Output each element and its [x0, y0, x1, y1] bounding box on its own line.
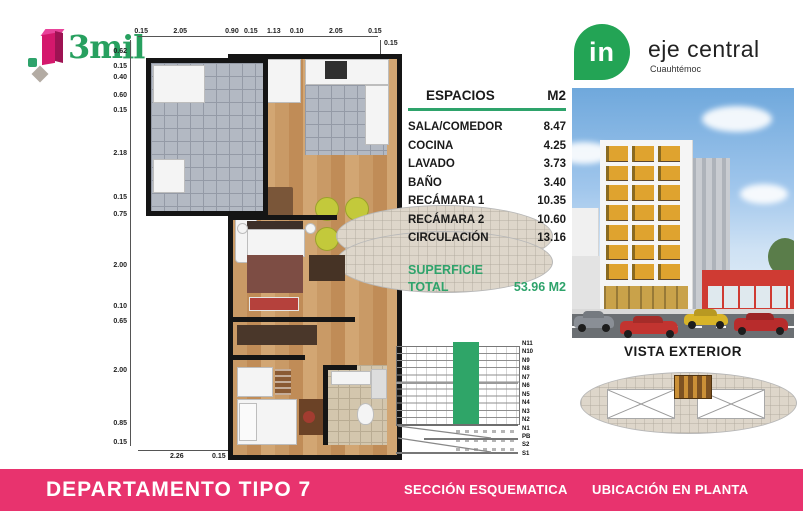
balcony	[658, 264, 680, 280]
wardrobe	[309, 255, 345, 281]
dimension-value: 2.00	[108, 334, 130, 408]
section-level-labels: N11N10N9N8N7N6N5N4N3N2N1PBS2S1	[522, 341, 533, 457]
car	[734, 318, 788, 331]
pin-text: in	[589, 37, 615, 68]
level-label: N9	[522, 358, 533, 364]
row-value: 3.73	[544, 155, 566, 174]
kitchen-counter	[305, 59, 389, 85]
laundry-counter	[153, 65, 205, 103]
bed1-pillows	[247, 229, 305, 257]
balcony	[606, 146, 628, 162]
page-title: DEPARTAMENTO TIPO 7	[46, 469, 311, 511]
nightstand	[237, 223, 248, 234]
spaces-table: ESPACIOS M2 SALA/COMEDOR 8.47 COCINA 4.2…	[408, 88, 566, 296]
row-value: 3.40	[544, 174, 566, 193]
dimension-value: 0.40	[108, 70, 130, 85]
level-label: N3	[522, 409, 533, 415]
dimension-value: 0.85	[108, 408, 130, 440]
balcony	[632, 185, 654, 201]
level-label: N6	[522, 383, 533, 389]
highlighted-unit	[674, 375, 712, 399]
balcony-grid	[606, 146, 680, 280]
section-caption: SECCIÓN ESQUEMATICA	[404, 469, 568, 511]
tower-facade	[600, 140, 692, 316]
level-label: N5	[522, 392, 533, 398]
bed1-headboard	[247, 221, 303, 229]
row-value: 10.60	[537, 211, 566, 230]
toilet	[357, 403, 374, 425]
laundry-wing	[146, 58, 268, 216]
balcony	[632, 245, 654, 261]
balcony	[632, 166, 654, 182]
cloud	[740, 184, 788, 204]
dimension-value: 0.15	[372, 26, 378, 36]
footer-bar: DEPARTAMENTO TIPO 7 SECCIÓN ESQUEMATICA …	[0, 469, 803, 511]
bed2-pillow	[239, 403, 257, 441]
dimension-value: 0.15	[108, 439, 130, 446]
location-pin-icon: in	[574, 24, 630, 80]
row-label: COCINA	[408, 137, 453, 156]
dimension-value: 0.15	[108, 194, 130, 201]
level-label: N7	[522, 375, 533, 381]
balcony	[658, 205, 680, 221]
storefront-glass	[706, 286, 790, 308]
dimension-value: 0.60	[108, 84, 130, 106]
developer-name: eje central	[648, 36, 760, 63]
balcony	[606, 225, 628, 241]
spaces-table-unit-header: M2	[547, 88, 566, 103]
highlighted-unit-stack	[453, 342, 479, 426]
ladder-shelf	[275, 369, 291, 395]
balcony	[632, 146, 654, 162]
balcony	[632, 205, 654, 221]
table-row: RECÁMARA 2 10.60	[408, 211, 566, 230]
washer	[153, 159, 185, 193]
total-label-line1: SUPERFICIE	[408, 262, 566, 279]
level-label: N1	[522, 426, 533, 432]
balcony	[658, 245, 680, 261]
balcony	[658, 146, 680, 162]
ramp-lines	[396, 424, 518, 456]
brochure-sheet: { "brand": { "name": "3mil" }, "develope…	[0, 0, 803, 528]
row-label: CIRCULACIÓN	[408, 229, 489, 248]
car	[574, 316, 614, 328]
schematic-section: N11N10N9N8N7N6N5N4N3N2N1PBS2S1	[396, 341, 548, 460]
location-caption: UBICACIÓN EN PLANTA	[592, 469, 748, 511]
dimension-column-left: 0.620.150.400.600.152.180.150.752.000.10…	[108, 40, 131, 446]
brand-logo-cube-icon	[42, 33, 55, 65]
table-row: LAVADO 3.73	[408, 155, 566, 174]
table-row: COCINA 4.25	[408, 137, 566, 156]
wardrobe2	[237, 367, 273, 397]
level-label: N11	[522, 341, 533, 347]
dresser	[249, 297, 299, 311]
stove	[325, 61, 347, 79]
level-label: N2	[522, 417, 533, 423]
desk-chair	[303, 411, 315, 423]
developer-location: Cuauhtémoc	[650, 64, 701, 74]
developer-logo: in eje central Cuauhtémoc	[574, 24, 794, 82]
storefront	[702, 270, 794, 314]
brand-logo-dot-icon	[28, 58, 37, 67]
dimension-value: 2.05	[144, 26, 216, 36]
balcony	[606, 245, 628, 261]
balcony	[658, 185, 680, 201]
car	[620, 321, 678, 334]
dimension-value: 1.13	[254, 26, 294, 36]
bathroom-sink	[331, 371, 371, 385]
row-value: 4.25	[544, 137, 566, 156]
row-label: BAÑO	[408, 174, 442, 193]
interior-wall	[323, 365, 328, 445]
level-label: S2	[522, 442, 533, 448]
exterior-render	[572, 88, 794, 338]
green-rule	[408, 108, 566, 111]
balcony	[658, 225, 680, 241]
table-row: RECÁMARA 1 10.35	[408, 192, 566, 211]
closet	[237, 325, 317, 345]
table-row: SALA/COMEDOR 8.47	[408, 118, 566, 137]
row-label: SALA/COMEDOR	[408, 118, 503, 137]
balcony	[606, 185, 628, 201]
row-label: RECÁMARA 1	[408, 192, 484, 211]
dimension-value: 0.15	[108, 63, 130, 70]
row-label: LAVADO	[408, 155, 455, 174]
dimension-value: 0.90	[216, 26, 248, 36]
row-label: RECÁMARA 2	[408, 211, 484, 230]
dimension-value: 0.65	[108, 310, 130, 334]
spaces-table-title: ESPACIOS	[426, 88, 495, 103]
dimension-value: 0.10	[108, 303, 130, 310]
cloud	[702, 106, 772, 132]
nightstand	[305, 223, 316, 234]
courtyard	[607, 389, 675, 419]
row-value: 8.47	[544, 118, 566, 137]
floorplan-drawing	[142, 42, 394, 452]
level-label: PB	[522, 434, 533, 440]
interior-wall	[233, 355, 305, 360]
bathroom-cabinet	[371, 369, 387, 399]
level-label: S1	[522, 451, 533, 457]
brand-logo-base-icon	[32, 66, 49, 83]
table-row: BAÑO 3.40	[408, 174, 566, 193]
row-value: 10.35	[537, 192, 566, 211]
row-value: 13.16	[537, 229, 566, 248]
interior-wall	[323, 365, 357, 370]
exterior-caption: VISTA EXTERIOR	[572, 344, 794, 359]
dimension-value: 2.00	[108, 229, 130, 303]
balcony	[632, 225, 654, 241]
brand-logo-cube-icon	[55, 31, 63, 63]
dining-chair	[315, 227, 339, 251]
total-row: TOTAL 53.96 M2	[408, 279, 566, 296]
balcony	[606, 166, 628, 182]
kitchen-sink-cabinet	[365, 85, 389, 145]
level-label: N10	[522, 349, 533, 355]
bed1-blanket	[247, 255, 303, 293]
dimension-value: 2.26	[138, 451, 216, 461]
table-row: CIRCULACIÓN 13.16	[408, 229, 566, 248]
balcony	[606, 264, 628, 280]
location-in-plan	[580, 364, 795, 460]
floorplan: 0.152.050.900.151.130.102.050.15 2.260.1…	[106, 26, 402, 468]
balcony	[658, 166, 680, 182]
dimension-value: 0.15	[108, 107, 130, 114]
total-value: 53.96 M2	[514, 279, 566, 296]
dimension-value: 2.05	[300, 26, 372, 36]
balcony	[606, 205, 628, 221]
car	[684, 314, 728, 325]
level-label: N4	[522, 400, 533, 406]
dimension-value: 0.62	[108, 40, 130, 63]
building-plate	[580, 372, 797, 434]
dimension-value: 2.18	[108, 113, 130, 194]
total-label-line2: TOTAL	[408, 279, 449, 296]
level-label: N8	[522, 366, 533, 372]
interior-wall	[233, 317, 355, 322]
dimension-row-top: 0.152.050.900.151.130.102.050.15	[138, 26, 378, 37]
balcony	[632, 264, 654, 280]
dimension-value: 0.75	[108, 201, 130, 229]
